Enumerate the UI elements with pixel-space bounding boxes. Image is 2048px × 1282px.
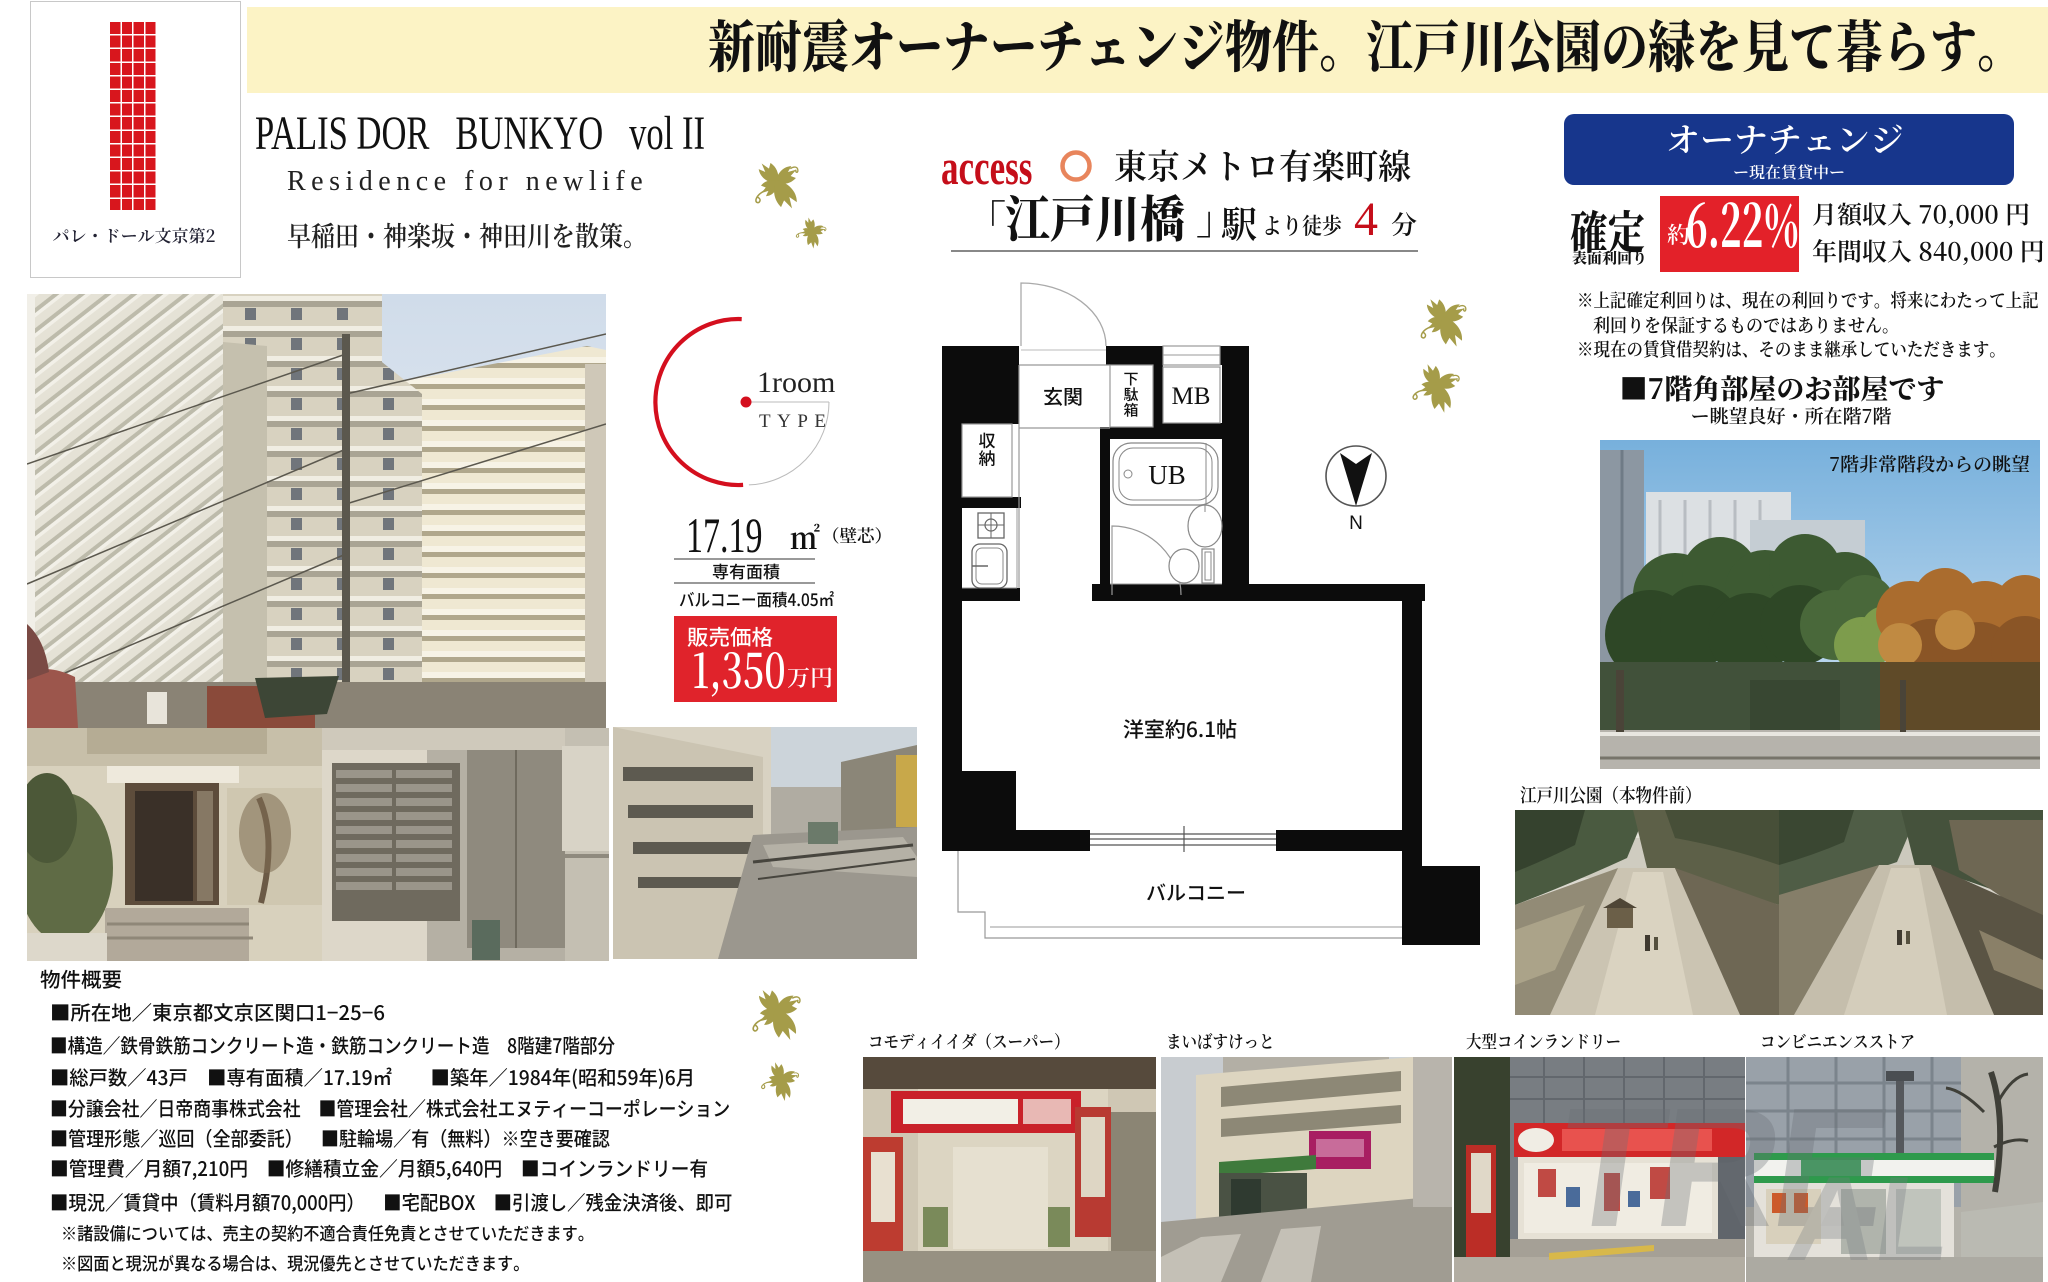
svg-text:UB: UB [1148, 460, 1186, 490]
svg-text:MB: MB [1172, 383, 1211, 410]
svg-text:N: N [1349, 513, 1363, 534]
